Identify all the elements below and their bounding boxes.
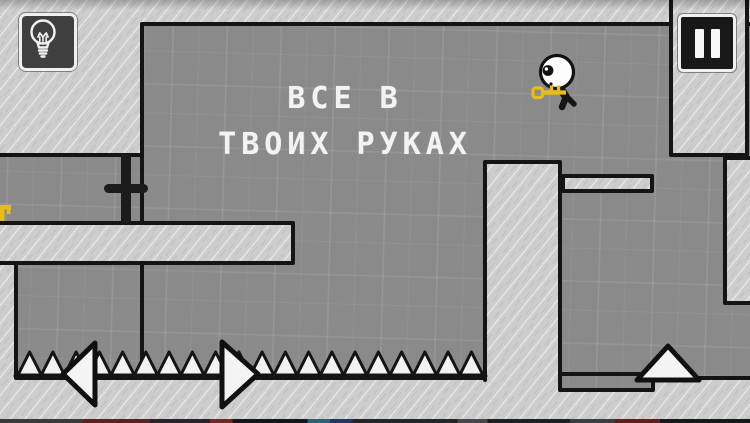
level-canvas [0, 0, 750, 423]
game-screen: ВСЕ В ТВОИХ РУКАХ [0, 0, 750, 423]
pillar-center [485, 162, 560, 382]
player-eye [543, 65, 554, 76]
lightbulb-icon [22, 16, 64, 62]
player-mouth [549, 82, 552, 85]
ledge-left [0, 223, 293, 263]
pause-icon [695, 29, 720, 58]
pause-button[interactable] [678, 14, 736, 72]
hint-button[interactable] [19, 13, 77, 71]
player-pupil [545, 67, 548, 70]
wall-right-band [725, 158, 750, 303]
ledge-thin-right [563, 176, 652, 191]
ad-banner-edge [0, 419, 750, 423]
play-area-main [142, 24, 750, 378]
lever-handle[interactable] [104, 184, 148, 193]
